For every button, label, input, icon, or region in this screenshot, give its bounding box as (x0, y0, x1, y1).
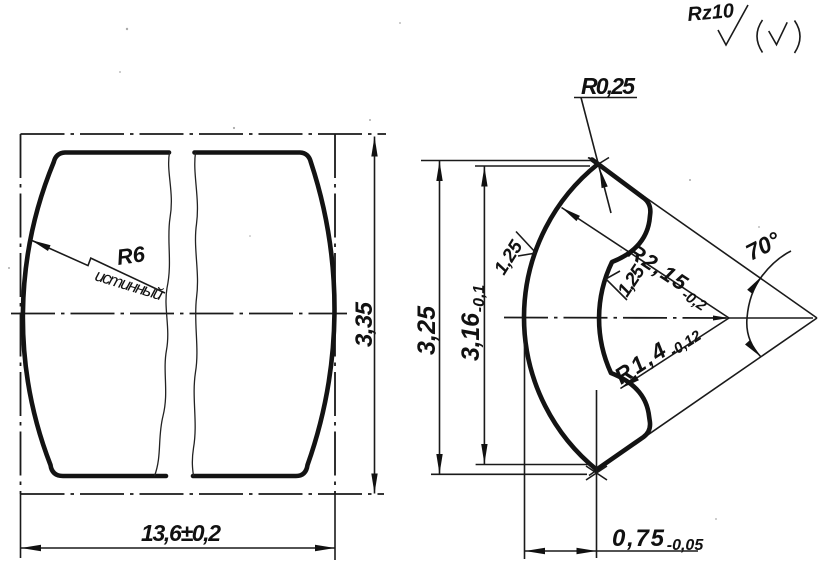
svg-text:3,35: 3,35 (351, 301, 378, 347)
svg-text:3,25: 3,25 (413, 305, 441, 355)
svg-text:13,6±0,2: 13,6±0,2 (141, 520, 221, 546)
svg-text:Rz10: Rz10 (687, 0, 735, 26)
svg-text:R6: R6 (115, 241, 147, 270)
svg-text:R0,25: R0,25 (581, 73, 636, 99)
